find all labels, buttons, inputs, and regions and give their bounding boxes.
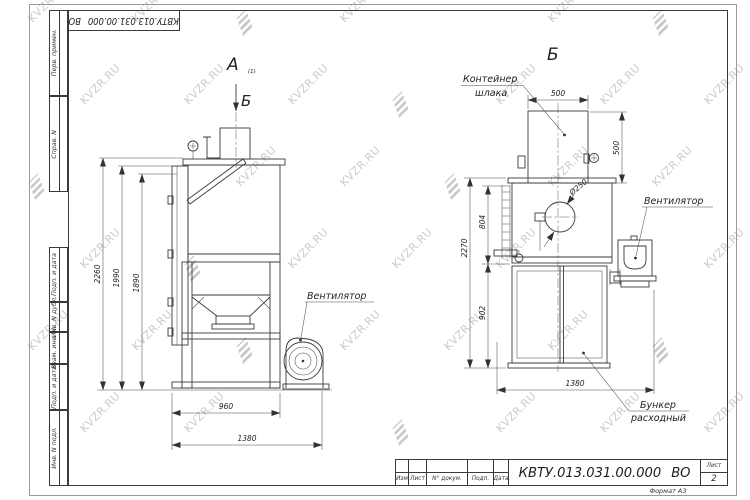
fan-front-view bbox=[610, 236, 656, 287]
dim-diameter-text: Ø250 bbox=[567, 177, 589, 198]
feed-hopper bbox=[512, 266, 607, 363]
view-a-label: А bbox=[226, 55, 239, 75]
fan-label: Вентилятор bbox=[307, 291, 366, 302]
furnace-body bbox=[188, 165, 280, 262]
dim-text: 1890 bbox=[132, 273, 141, 292]
fan-leader bbox=[636, 207, 713, 256]
clamp-arrow bbox=[544, 232, 554, 247]
hopper-funnel bbox=[192, 297, 270, 316]
fan-center bbox=[302, 360, 305, 363]
furnace-top-plate bbox=[183, 159, 285, 165]
dim-text: 1990 bbox=[112, 268, 121, 287]
dim-1380-side: 1380 bbox=[172, 391, 322, 450]
frame-bottom-rail bbox=[172, 382, 280, 388]
chimney bbox=[220, 128, 250, 159]
dim-1890: 1890 bbox=[132, 174, 177, 390]
dim-text: 2260 bbox=[93, 264, 102, 283]
frame-mid-rail bbox=[182, 333, 280, 339]
fan-leader bbox=[301, 302, 374, 338]
leader-dot bbox=[634, 257, 637, 260]
feed-hopper-label-line1: Бункер bbox=[640, 400, 676, 411]
dim-text: 1380 bbox=[565, 379, 584, 388]
funnel-outlet bbox=[216, 316, 250, 324]
frame-leg-left bbox=[182, 262, 192, 388]
dim-2270: 2270 bbox=[460, 178, 506, 368]
fan-base bbox=[283, 384, 329, 389]
body bbox=[512, 183, 612, 263]
view-a-label-sub: (1) bbox=[248, 69, 256, 75]
drawing-sheet: { "watermark": { "text": "KVZR.RU" }, "f… bbox=[0, 0, 750, 500]
feed-hopper-inner bbox=[517, 271, 602, 358]
dim-text: 2270 bbox=[460, 238, 469, 257]
dim-text: 1380 bbox=[237, 434, 256, 443]
side-pipe bbox=[518, 156, 525, 168]
frame-leg-right bbox=[270, 262, 280, 388]
valve-icon bbox=[515, 254, 523, 262]
fan-nub bbox=[631, 236, 637, 240]
dim-text: 804 bbox=[478, 215, 487, 230]
side-door bbox=[172, 166, 188, 345]
dim-text: 960 bbox=[219, 402, 234, 411]
dim-500-side: 500 bbox=[590, 112, 627, 183]
slag-container-label-line1: Контейнер bbox=[463, 74, 517, 85]
feed-hopper-label-line2: расходный bbox=[630, 413, 686, 424]
fan-side-view bbox=[283, 338, 329, 389]
drawing-canvas: А (1) Б bbox=[0, 0, 750, 500]
leader-dot bbox=[582, 352, 585, 355]
diameter-leader bbox=[567, 195, 574, 204]
dim-1380-front: 1380 bbox=[497, 290, 654, 394]
view-b-label: Б bbox=[547, 45, 559, 65]
dim-902: 902 bbox=[464, 264, 506, 368]
body-top-flange bbox=[508, 178, 616, 183]
fan-plinth bbox=[621, 281, 649, 287]
gauge-cross bbox=[591, 155, 597, 161]
dim-960: 960 bbox=[172, 393, 280, 418]
chimney-pipe bbox=[203, 137, 220, 158]
view-b: Б Ø250 bbox=[460, 45, 713, 424]
dim-text: 500 bbox=[612, 141, 621, 156]
inclined-door bbox=[187, 159, 246, 204]
leader-dot bbox=[299, 339, 302, 342]
dim-text: 500 bbox=[551, 89, 566, 98]
platform bbox=[494, 250, 517, 256]
fan-label: Вентилятор bbox=[644, 196, 703, 207]
view-direction-label: Б bbox=[241, 92, 251, 110]
slag-container-label-line2: шлака bbox=[475, 88, 507, 99]
view-a: А (1) Б bbox=[93, 55, 374, 450]
funnel-flange bbox=[212, 324, 254, 329]
hopper-divider bbox=[560, 266, 564, 363]
leader-dot bbox=[563, 134, 566, 137]
dim-text: 902 bbox=[478, 306, 487, 321]
ladder bbox=[502, 185, 510, 258]
gussets bbox=[192, 297, 270, 309]
